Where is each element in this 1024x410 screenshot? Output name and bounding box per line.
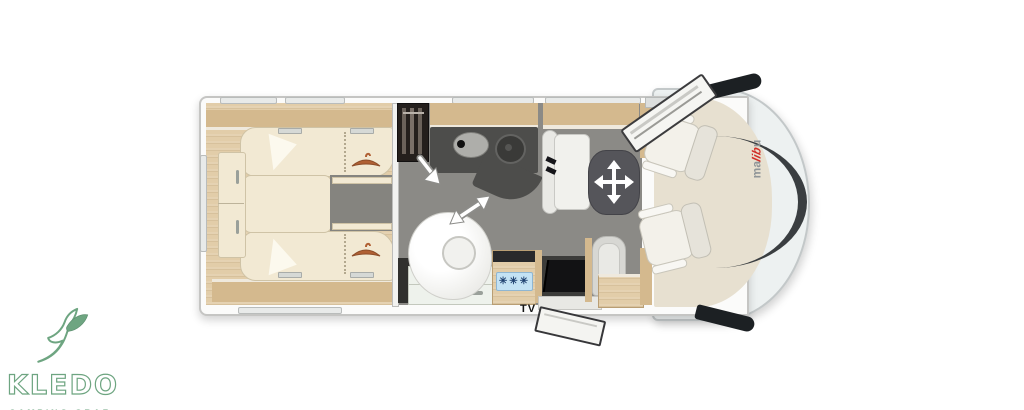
hanging-clothes — [402, 108, 406, 154]
kitchen-overhead-shelf — [430, 103, 538, 129]
sideboard-chest — [598, 274, 644, 308]
window-top-1 — [220, 97, 277, 104]
bed-step-top — [332, 177, 392, 184]
bed-vent-3 — [278, 272, 302, 278]
faucet-icon — [457, 140, 465, 148]
window-top-2 — [285, 97, 345, 104]
bed-vent-2 — [350, 128, 374, 134]
brand-prefix: ma — [749, 161, 763, 178]
wardrobe-rail — [403, 112, 424, 114]
window-rear — [200, 155, 207, 252]
tv-label: TV — [520, 303, 536, 315]
snowflake-badge: ✳✳✳ — [496, 272, 533, 291]
door-swing-arrow-icon — [414, 154, 444, 186]
page: ✳✳✳ TV — [0, 0, 1024, 410]
bed-extension-dots-bottom — [344, 234, 346, 274]
move-table-arrows-icon — [594, 160, 634, 204]
overhead-locker-bottom — [212, 279, 396, 302]
fridge-top — [493, 251, 535, 262]
dinette-overhead-cabinet — [543, 103, 639, 129]
hanging-clothes — [418, 108, 422, 154]
hob-burner — [495, 134, 526, 164]
dealer-wordmark: KLEDO — [5, 366, 135, 402]
dealer-logo: KLEDO CAMPING GRAZ — [5, 306, 137, 410]
rear-cabinet — [218, 152, 246, 258]
cabinet-handle — [236, 220, 239, 234]
fridge: ✳✳✳ — [492, 250, 536, 305]
bed-extension-dots-top — [344, 132, 346, 172]
hanging-clothes — [410, 108, 414, 154]
door-swing-arrow-icon — [448, 192, 492, 226]
snowflake-icons: ✳✳✳ — [499, 277, 530, 287]
rear-cabinet-divider — [218, 203, 244, 204]
vehicle-brand-logo: malibu — [744, 122, 768, 196]
burner-centre — [505, 144, 512, 151]
brand-accent: lib — [749, 145, 763, 162]
hanger-icon — [349, 151, 383, 169]
bed-vent-1 — [278, 128, 302, 134]
dove-icon — [29, 306, 95, 366]
bed-centre-platform — [243, 175, 332, 233]
bed-vent-4 — [350, 272, 374, 278]
motorhome-floorplan: ✳✳✳ TV — [190, 60, 830, 360]
bed-step-bottom — [332, 223, 392, 230]
dealer-name: KLEDO — [7, 370, 119, 401]
cabinet-handle — [236, 170, 239, 184]
seat-side-panel — [585, 238, 592, 302]
hanger-icon — [349, 241, 383, 259]
window-bottom-1 — [238, 307, 342, 314]
dinette-bench-seat — [554, 134, 590, 210]
toilet — [442, 236, 476, 270]
